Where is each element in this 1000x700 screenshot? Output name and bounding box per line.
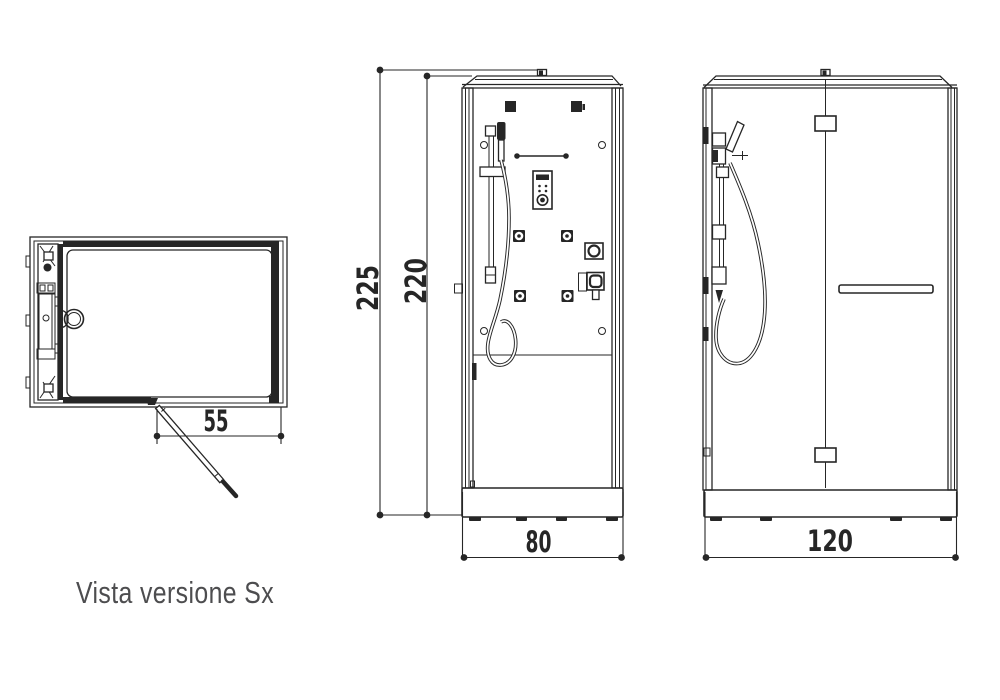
hand-shower-assembly-side [712, 122, 765, 364]
back-panel-edge [948, 88, 957, 490]
foot-icon [556, 517, 567, 522]
dim-dot [618, 554, 625, 561]
dim-dot [377, 67, 384, 74]
dim-label: 225 [351, 265, 385, 311]
rail-bracket [713, 225, 726, 239]
button-icon [545, 190, 548, 193]
side-tab [455, 284, 463, 293]
foot-icon [760, 517, 772, 522]
control-panel [533, 171, 552, 209]
drain-icon-inner [68, 313, 81, 326]
indicator-dot [563, 153, 569, 159]
steam-vent-nub-dark [539, 71, 543, 76]
dim-dot [278, 433, 285, 440]
foot-icon [890, 517, 902, 522]
door-bottom-pivot [704, 448, 710, 456]
rail-bracket [713, 133, 726, 146]
speaker-icon [571, 101, 582, 112]
wall-tick [704, 327, 709, 341]
dim-dot [154, 433, 161, 440]
technical-drawing-shower-cabin: 55 225 220 [0, 0, 1000, 700]
dim-label: 55 [204, 404, 229, 438]
body-jet-icon [562, 290, 574, 302]
thermostat-knob [585, 243, 603, 259]
handshower-handle [499, 140, 505, 161]
plan-view: 55 [26, 237, 287, 496]
knob-center [540, 198, 545, 203]
front-view: 225 220 [351, 67, 625, 561]
foot-icon [469, 517, 481, 522]
wall-tick [704, 127, 709, 144]
dim-dot [461, 554, 468, 561]
bracket-hole [40, 285, 45, 291]
button-icon [545, 185, 548, 188]
diverter-valve [579, 273, 605, 300]
foot-icon [940, 517, 952, 522]
shower-holder-dark [713, 150, 718, 162]
front-wall-band [63, 397, 151, 404]
panel-body [39, 294, 55, 349]
door-handle-icon [223, 482, 236, 497]
shower-tray [67, 250, 272, 397]
dim-dot [952, 554, 959, 561]
body-jet-icon [513, 230, 525, 242]
dim-80: 80 [461, 492, 625, 561]
corner-block [269, 396, 279, 404]
hand-shower-assembly [480, 122, 516, 365]
pivot-dot-icon [44, 264, 52, 272]
hinge-plate [44, 384, 53, 392]
panel-knob-icon [43, 315, 49, 321]
body-jet-icon [561, 230, 573, 242]
button-icon [538, 185, 541, 188]
dim-dot [377, 512, 384, 519]
slide-rail [489, 131, 494, 271]
dim-220: 220 [399, 73, 472, 519]
right-wall-band [271, 241, 279, 404]
clip-dark [59, 297, 62, 306]
hinge-plate [44, 252, 53, 260]
dim-label: 80 [526, 525, 552, 559]
dim-dot [424, 73, 431, 80]
rail-slider [717, 167, 729, 178]
plan-inner-frame [34, 241, 283, 403]
door-pivot-block [146, 398, 158, 405]
indicator-dot [514, 153, 520, 159]
speaker-icon [505, 101, 516, 112]
water-inlet [712, 267, 726, 284]
shower-hose-inner [488, 160, 516, 365]
handshower-head-icon [497, 122, 506, 140]
steam-vent-nub-dark [823, 71, 827, 76]
column-wall [58, 244, 63, 400]
hole-icon [599, 328, 606, 335]
side-base [704, 490, 957, 517]
body-jet-icon [514, 290, 526, 302]
hole-icon [599, 142, 606, 149]
towel-bar [839, 285, 933, 293]
slide-indicator [514, 153, 569, 159]
top-cap-outline [704, 76, 952, 88]
door-seal-mark [472, 363, 477, 380]
handshower-head-icon [726, 122, 744, 153]
foot-icon [710, 517, 722, 522]
plan-equipment-column [37, 244, 63, 400]
button-icon [538, 190, 541, 193]
caption-text: Vista versione Sx [76, 575, 274, 610]
top-cap-outline [463, 76, 621, 87]
front-base [462, 488, 623, 517]
hole-icon [481, 142, 488, 149]
dim-dot [703, 554, 710, 561]
hole-icon [481, 328, 488, 335]
dim-120: 120 [703, 492, 959, 561]
dim-label: 220 [399, 258, 433, 304]
back-wall-band [63, 241, 279, 247]
slide-rail [720, 161, 724, 283]
wall-tick [704, 277, 709, 294]
door-hinge [815, 448, 836, 462]
side-view: 120 [703, 70, 959, 561]
valve-lever [593, 290, 600, 300]
shower-hose [488, 160, 516, 365]
dim-label: 120 [807, 524, 853, 558]
dim-225: 225 [351, 67, 537, 519]
bracket-plate [37, 349, 55, 359]
door-hinge [815, 116, 836, 131]
left-post [462, 88, 473, 488]
foot-icon [516, 517, 527, 522]
display-icon [536, 175, 549, 181]
rail-top-cap [486, 126, 496, 136]
bracket-hole [48, 285, 53, 291]
speaker-tab [583, 104, 586, 110]
foot-icon [606, 517, 618, 522]
clip-dark [59, 344, 62, 353]
dim-dot [424, 512, 431, 519]
right-post [612, 88, 623, 488]
